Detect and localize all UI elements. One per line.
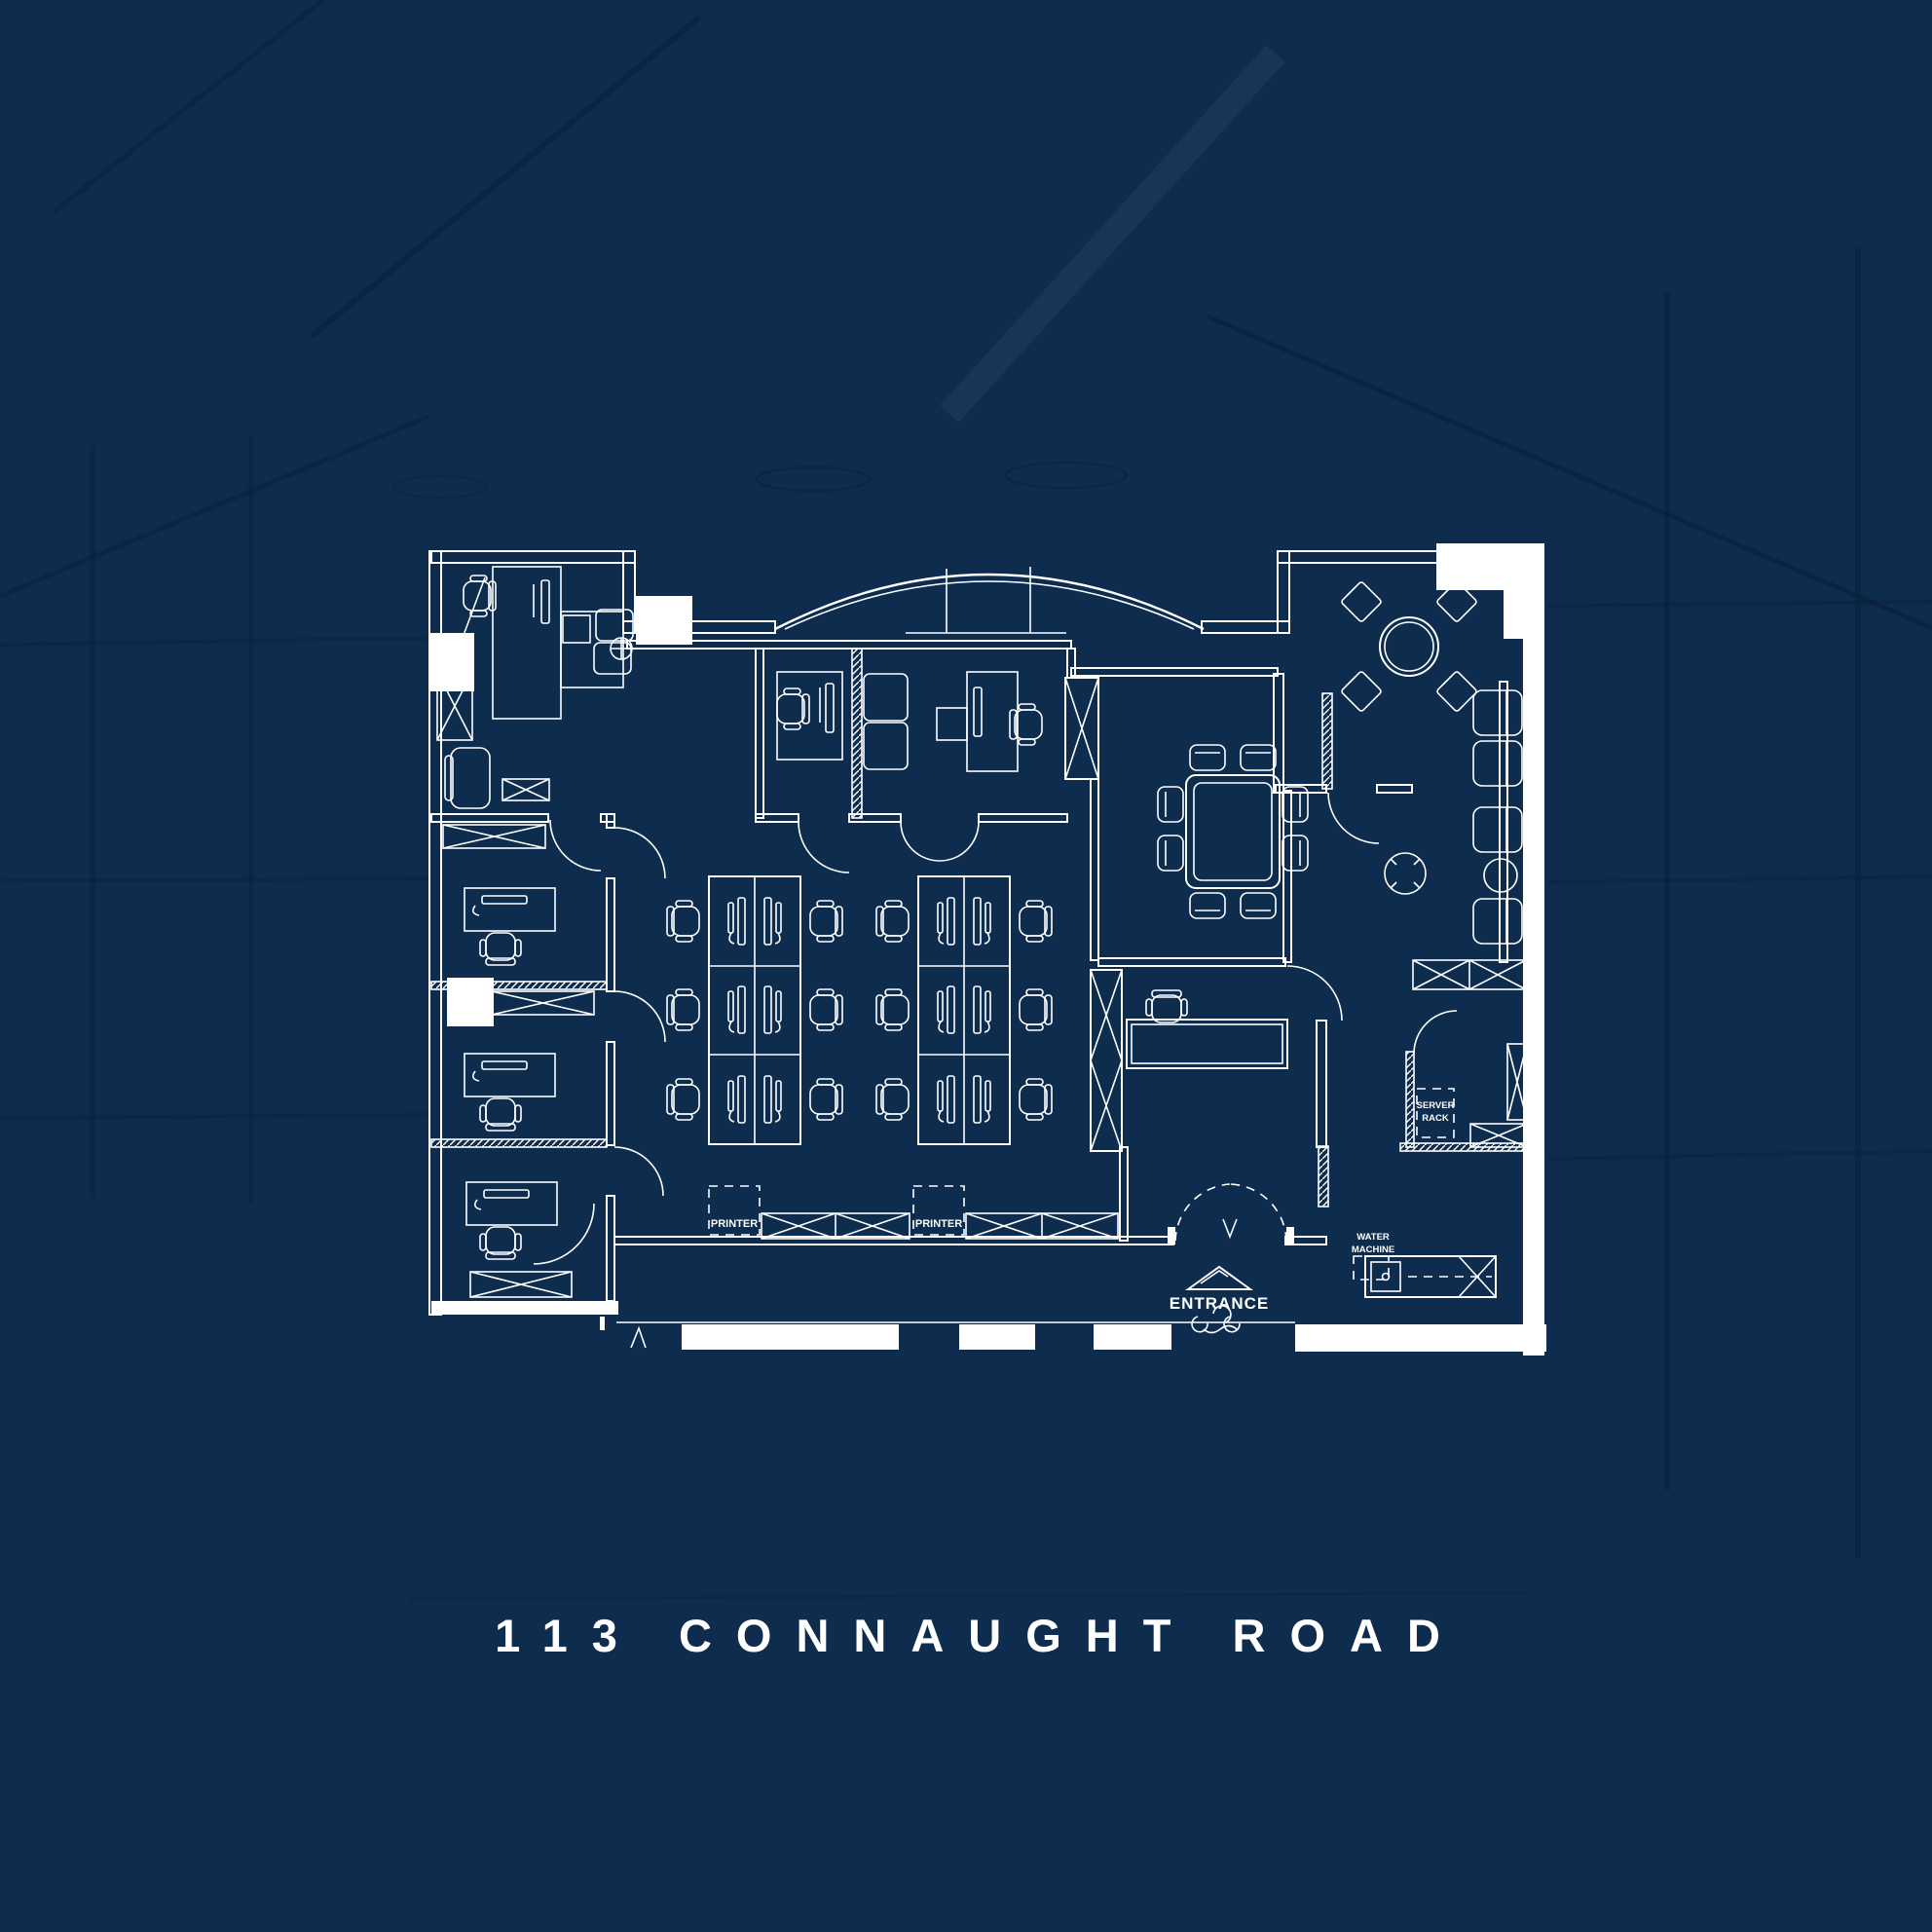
- water-machine-label-2: MACHINE: [1352, 1245, 1394, 1255]
- entrance: ENTRANCE: [1168, 1184, 1294, 1333]
- printer-right-label: PRINTER: [915, 1218, 962, 1230]
- floor-plan: PRINTER PRINTER: [429, 543, 1546, 1356]
- water-machine-label-1: WATER: [1356, 1232, 1390, 1243]
- desk-cluster-right: [876, 876, 1052, 1144]
- interior-walls: [431, 641, 1529, 1301]
- meeting-room: [1158, 745, 1308, 918]
- top-office-a: [777, 672, 842, 760]
- printer-left-box: PRINTER: [709, 1186, 760, 1235]
- server-room: SERVER RACK: [1417, 1044, 1527, 1147]
- printer-right-box: PRINTER: [913, 1186, 964, 1235]
- lounge-seating: [1385, 690, 1526, 989]
- background-photo-lines: [0, 0, 1932, 1599]
- entrance-label: ENTRANCE: [1170, 1294, 1269, 1313]
- server-rack-label-1: SERVER: [1417, 1100, 1455, 1111]
- round-table-room: [1341, 581, 1477, 712]
- left-office-1: [464, 888, 555, 965]
- pantry-counter: [1365, 1256, 1496, 1297]
- blueprint-poster: PRINTER PRINTER: [0, 0, 1932, 1932]
- page-title: 113 CONNAUGHT ROAD: [14, 1609, 1932, 1662]
- executive-office: [443, 567, 623, 848]
- left-office-3: [466, 1182, 572, 1297]
- desk-cluster-left: [667, 876, 842, 1144]
- reception-desk: [1127, 990, 1287, 1068]
- printer-left-label: PRINTER: [711, 1218, 758, 1230]
- server-rack-label-2: RACK: [1422, 1113, 1449, 1124]
- top-office-b: [864, 672, 1042, 771]
